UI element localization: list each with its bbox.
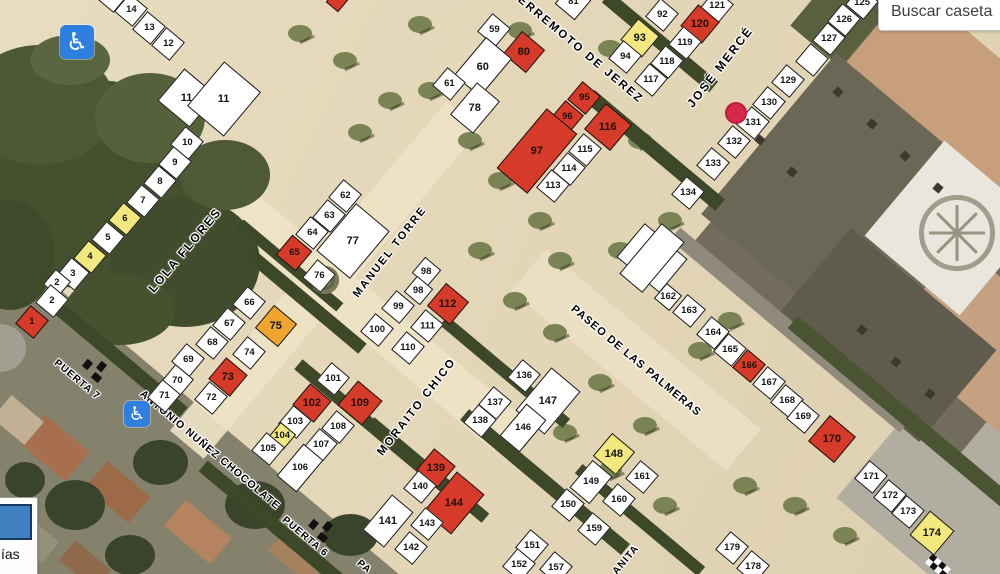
legend-panel: ías bbox=[0, 497, 38, 574]
caseta-number: 6 bbox=[122, 214, 127, 224]
caseta-number: 152 bbox=[511, 560, 527, 570]
caseta-number: 99 bbox=[393, 302, 404, 312]
caseta-number: 62 bbox=[340, 191, 351, 201]
caseta-number: 94 bbox=[620, 52, 631, 62]
caseta-number: 172 bbox=[882, 491, 898, 501]
feria-map-canvas[interactable]: 1413121111109876543221666768697071757473… bbox=[0, 0, 1000, 574]
caseta-number: 11 bbox=[218, 93, 230, 104]
search-input[interactable]: Buscar caseta bbox=[878, 0, 1000, 31]
caseta-number: 96 bbox=[562, 112, 573, 122]
caseta-number: 3 bbox=[70, 269, 75, 279]
caseta-number: 2 bbox=[54, 278, 59, 288]
caseta-number: 108 bbox=[330, 422, 346, 432]
caseta-number: 130 bbox=[761, 98, 777, 108]
caseta-number: 65 bbox=[289, 248, 300, 257]
caseta-number: 113 bbox=[545, 181, 560, 191]
caseta-133[interactable]: 133 bbox=[696, 147, 730, 181]
caseta-number: 117 bbox=[643, 75, 658, 85]
caseta-number: 174 bbox=[923, 527, 941, 538]
vegetation bbox=[45, 480, 105, 530]
caseta-number: 10 bbox=[182, 138, 193, 148]
caseta-number: 100 bbox=[369, 325, 385, 335]
caseta-number: 142 bbox=[403, 543, 419, 553]
caseta-number: 112 bbox=[439, 299, 457, 310]
caseta-number: 97 bbox=[531, 146, 543, 157]
caseta-number: 63 bbox=[324, 211, 335, 221]
caseta-number: 107 bbox=[313, 440, 329, 450]
caseta-number: 149 bbox=[583, 477, 599, 487]
caseta-81[interactable]: 81 bbox=[555, 0, 592, 20]
caseta-number: 75 bbox=[270, 321, 282, 332]
caseta-number: 102 bbox=[303, 397, 321, 408]
caseta-number: 118 bbox=[659, 57, 674, 67]
accessibility-wheelchair-icon[interactable]: ♿ bbox=[124, 401, 150, 427]
caseta-number: 166 bbox=[741, 361, 757, 371]
caseta-number: 73 bbox=[222, 372, 234, 383]
legend-vias-swatch bbox=[0, 504, 32, 540]
caseta-number: 170 bbox=[823, 433, 841, 444]
compass-rose bbox=[919, 195, 995, 271]
caseta-number: 59 bbox=[489, 25, 500, 35]
caseta-number: 140 bbox=[412, 482, 428, 492]
caseta-number: 136 bbox=[516, 371, 532, 381]
caseta-number: 125 bbox=[854, 0, 870, 8]
caseta-number: 74 bbox=[244, 348, 255, 358]
caseta-number: 5 bbox=[105, 233, 110, 243]
caseta-number: 137 bbox=[487, 398, 503, 408]
caseta-number: 160 bbox=[611, 495, 627, 505]
caseta-170[interactable]: 170 bbox=[808, 415, 856, 463]
caseta-number: 98 bbox=[413, 285, 424, 295]
caseta-number: 178 bbox=[745, 562, 761, 572]
caseta-number: 109 bbox=[351, 397, 369, 408]
caseta-number: 2 bbox=[49, 296, 54, 306]
accessibility-wheelchair-icon[interactable]: ♿ bbox=[60, 25, 94, 59]
caseta-number: 133 bbox=[705, 159, 721, 169]
caseta-number: 168 bbox=[779, 396, 795, 406]
caseta-number: 92 bbox=[657, 10, 668, 20]
caseta-number: 78 bbox=[469, 103, 481, 114]
caseta-number: 161 bbox=[634, 472, 650, 482]
caseta-unlabeled[interactable] bbox=[326, 0, 349, 12]
caseta-number: 169 bbox=[795, 412, 811, 422]
caseta-number: 141 bbox=[379, 515, 397, 526]
vegetation bbox=[5, 462, 45, 498]
caseta-number: 171 bbox=[863, 472, 879, 482]
caseta-number: 67 bbox=[224, 319, 235, 329]
caseta-number: 106 bbox=[292, 463, 308, 473]
caseta-number: 8 bbox=[157, 177, 162, 187]
caseta-number: 93 bbox=[634, 33, 646, 44]
caseta-number: 115 bbox=[577, 145, 592, 155]
vegetation bbox=[105, 535, 155, 574]
caseta-number: 164 bbox=[705, 328, 721, 338]
caseta-number: 163 bbox=[681, 306, 697, 316]
caseta-80[interactable]: 80 bbox=[503, 31, 545, 73]
caseta-number: 81 bbox=[568, 0, 579, 7]
legend-vias-label: ías bbox=[1, 546, 20, 562]
caseta-number: 138 bbox=[472, 416, 488, 426]
selected-location-marker[interactable] bbox=[725, 102, 747, 124]
caseta-number: 119 bbox=[677, 38, 692, 48]
caseta-number: 157 bbox=[548, 563, 564, 573]
caseta-number: 14 bbox=[126, 5, 137, 15]
caseta-number: 68 bbox=[207, 338, 218, 348]
caseta-number: 1 bbox=[29, 317, 34, 327]
caseta-number: 173 bbox=[900, 507, 916, 517]
caseta-number: 139 bbox=[427, 462, 445, 473]
caseta-number: 165 bbox=[722, 345, 738, 355]
caseta-number: 150 bbox=[560, 500, 576, 510]
caseta-number: 159 bbox=[586, 524, 602, 534]
caseta-number: 148 bbox=[605, 448, 623, 459]
caseta-number: 151 bbox=[524, 541, 540, 551]
caseta-number: 95 bbox=[579, 93, 590, 103]
caseta-number: 13 bbox=[144, 23, 155, 33]
caseta-number: 116 bbox=[599, 122, 617, 133]
caseta-number: 162 bbox=[660, 292, 676, 302]
vegetation bbox=[133, 440, 188, 485]
caseta-number: 60 bbox=[477, 62, 489, 73]
caseta-number: 77 bbox=[347, 236, 359, 247]
caseta-number: 129 bbox=[780, 76, 796, 86]
caseta-number: 179 bbox=[724, 543, 740, 553]
caseta-number: 121 bbox=[709, 1, 725, 11]
caseta-number: 167 bbox=[761, 378, 777, 388]
caseta-number: 104 bbox=[274, 431, 290, 441]
caseta-number: 64 bbox=[307, 228, 318, 238]
caseta-number: 76 bbox=[314, 271, 325, 281]
caseta-number: 69 bbox=[183, 355, 194, 365]
caseta-number: 9 bbox=[172, 158, 177, 168]
caseta-number: 120 bbox=[691, 18, 709, 29]
caseta-number: 131 bbox=[745, 118, 761, 128]
caseta-number: 126 bbox=[836, 15, 852, 25]
caseta-number: 72 bbox=[206, 393, 217, 403]
caseta-number: 114 bbox=[561, 164, 576, 174]
caseta-number: 103 bbox=[287, 417, 303, 427]
caseta-number: 144 bbox=[445, 497, 463, 508]
caseta-number: 80 bbox=[518, 47, 530, 58]
caseta-number: 98 bbox=[421, 266, 432, 276]
caseta-number: 70 bbox=[172, 376, 183, 386]
caseta-number: 71 bbox=[159, 391, 170, 401]
caseta-number: 143 bbox=[419, 519, 435, 529]
caseta-number: 146 bbox=[515, 423, 531, 433]
caseta-number: 12 bbox=[163, 39, 174, 49]
caseta-161[interactable]: 161 bbox=[625, 460, 659, 494]
caseta-number: 147 bbox=[539, 395, 557, 406]
caseta-number: 134 bbox=[680, 188, 696, 198]
caseta-157[interactable]: 157 bbox=[539, 551, 573, 574]
caseta-number: 101 bbox=[325, 374, 341, 384]
search-placeholder: Buscar caseta bbox=[891, 3, 992, 21]
caseta-number: 132 bbox=[726, 137, 742, 147]
caseta-number: 111 bbox=[420, 321, 435, 331]
caseta-number: 110 bbox=[400, 343, 415, 353]
caseta-number: 7 bbox=[140, 196, 145, 206]
caseta-number: 66 bbox=[244, 298, 255, 308]
caseta-number: 127 bbox=[821, 34, 837, 44]
caseta-number: 105 bbox=[260, 444, 276, 454]
caseta-number: 4 bbox=[87, 252, 92, 261]
caseta-number: 61 bbox=[444, 79, 455, 89]
